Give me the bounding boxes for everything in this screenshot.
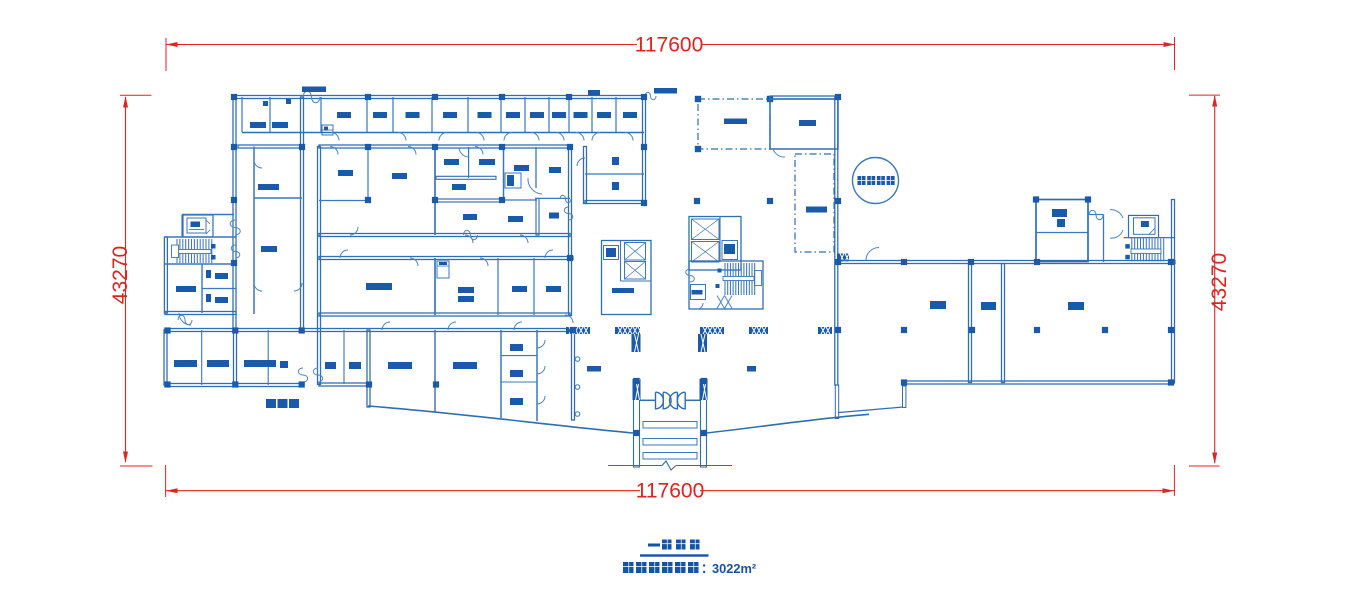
svg-text:117600: 117600: [636, 480, 705, 503]
svg-text:43270: 43270: [1208, 253, 1231, 311]
svg-text:43270: 43270: [109, 246, 132, 304]
svg-text:3022m²: 3022m²: [712, 561, 756, 576]
svg-text:117600: 117600: [635, 34, 704, 57]
